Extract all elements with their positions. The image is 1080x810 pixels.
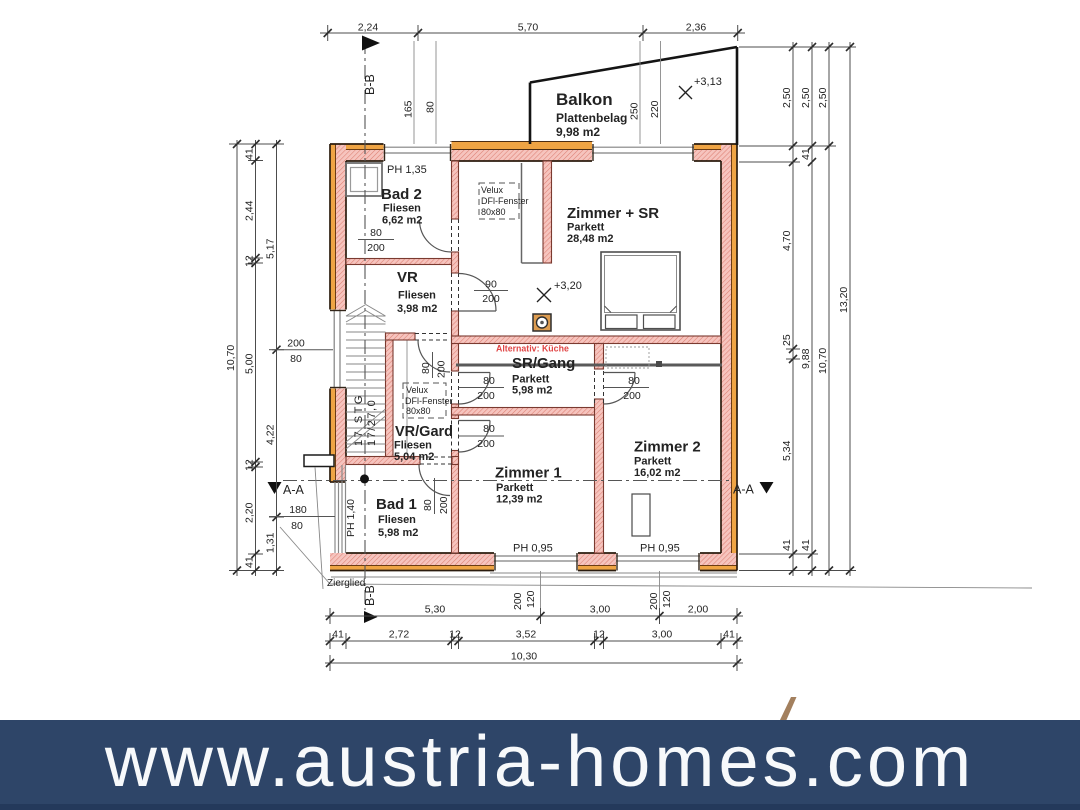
- svg-text:41: 41: [800, 148, 812, 160]
- svg-text:Fliesen: Fliesen: [398, 290, 436, 302]
- svg-text:www.austria-homes.com: www.austria-homes.com: [104, 722, 975, 802]
- svg-text:3,52: 3,52: [516, 629, 537, 641]
- svg-text:4,22: 4,22: [265, 424, 277, 445]
- svg-text:VR: VR: [397, 269, 418, 286]
- svg-text:Alternativ: Küche: Alternativ: Küche: [496, 344, 569, 354]
- svg-text:200: 200: [623, 390, 641, 402]
- svg-text:2,20: 2,20: [244, 502, 256, 523]
- svg-text:17/27,0: 17/27,0: [366, 399, 378, 446]
- svg-text:5,00: 5,00: [244, 353, 256, 374]
- svg-text:41: 41: [800, 539, 812, 551]
- svg-text:A-A: A-A: [733, 483, 755, 497]
- svg-text:Balkon: Balkon: [556, 90, 613, 109]
- svg-text:SR/Gang: SR/Gang: [512, 355, 575, 372]
- svg-text:5,34: 5,34: [781, 440, 793, 461]
- svg-text:Bad 2: Bad 2: [381, 186, 422, 203]
- svg-text:250: 250: [629, 102, 641, 120]
- svg-text:DFl-Fenster: DFl-Fenster: [481, 196, 529, 206]
- svg-text:PH 1,40: PH 1,40: [345, 499, 357, 537]
- svg-text:41: 41: [781, 539, 793, 551]
- svg-text:+3,20: +3,20: [554, 280, 582, 292]
- svg-text:12: 12: [593, 629, 605, 641]
- svg-text:Parkett: Parkett: [634, 456, 672, 468]
- svg-text:16,02 m2: 16,02 m2: [634, 467, 680, 479]
- svg-text:1,31: 1,31: [265, 532, 277, 553]
- svg-text:5,98 m2: 5,98 m2: [378, 527, 418, 539]
- svg-text:2,50: 2,50: [800, 87, 812, 108]
- svg-text:200: 200: [512, 592, 524, 610]
- svg-text:Zimmer + SR: Zimmer + SR: [567, 205, 659, 222]
- svg-text:10,30: 10,30: [511, 651, 537, 663]
- svg-text:9,98 m2: 9,98 m2: [556, 125, 600, 139]
- svg-text:80x80: 80x80: [406, 406, 431, 416]
- svg-text:2,44: 2,44: [244, 200, 256, 221]
- svg-text:Velux: Velux: [481, 185, 504, 195]
- svg-text:120: 120: [525, 590, 537, 608]
- svg-text:80: 80: [420, 362, 432, 374]
- svg-text:80: 80: [290, 353, 302, 365]
- svg-text:90: 90: [485, 279, 497, 291]
- svg-text:10,70: 10,70: [817, 348, 829, 374]
- svg-text:2,72: 2,72: [389, 629, 410, 641]
- svg-text:28,48 m2: 28,48 m2: [567, 233, 613, 245]
- svg-text:120: 120: [661, 590, 673, 608]
- svg-text:200: 200: [287, 338, 305, 350]
- svg-text:200: 200: [436, 360, 448, 378]
- svg-text:200: 200: [477, 390, 495, 402]
- svg-text:200: 200: [482, 293, 500, 305]
- svg-text:Bad 1: Bad 1: [376, 496, 417, 513]
- svg-text:Parkett: Parkett: [496, 482, 534, 494]
- svg-text:DFl-Fenster: DFl-Fenster: [405, 396, 453, 406]
- svg-text:+3,13: +3,13: [694, 76, 722, 88]
- svg-text:80: 80: [628, 375, 640, 387]
- svg-text:165: 165: [403, 100, 415, 118]
- svg-text:Zierglied: Zierglied: [327, 578, 365, 589]
- svg-text:Fliesen: Fliesen: [383, 203, 421, 215]
- svg-text:12,39 m2: 12,39 m2: [496, 494, 542, 506]
- svg-text:80: 80: [422, 499, 434, 511]
- svg-text:3,98 m2: 3,98 m2: [397, 303, 437, 315]
- svg-text:5,04 m2: 5,04 m2: [394, 451, 434, 463]
- svg-text:PH 0,95: PH 0,95: [513, 543, 553, 555]
- svg-text:10,70: 10,70: [225, 345, 237, 371]
- svg-text:41: 41: [244, 148, 256, 160]
- svg-text:5,17: 5,17: [265, 238, 277, 259]
- svg-text:13,20: 13,20: [838, 287, 850, 313]
- svg-text:41: 41: [332, 629, 344, 641]
- svg-text:5,30: 5,30: [425, 604, 446, 616]
- svg-text:Velux: Velux: [406, 385, 429, 395]
- svg-text:PH 1,35: PH 1,35: [387, 164, 427, 176]
- svg-text:3,00: 3,00: [590, 604, 611, 616]
- svg-text:12: 12: [449, 629, 461, 641]
- svg-text:12: 12: [244, 459, 256, 471]
- svg-text:B-B: B-B: [363, 74, 377, 95]
- svg-text:80: 80: [483, 375, 495, 387]
- svg-text:41: 41: [723, 629, 735, 641]
- svg-text:25: 25: [781, 334, 793, 346]
- svg-text:9,88: 9,88: [800, 348, 812, 369]
- svg-text:2,50: 2,50: [817, 87, 829, 108]
- svg-text:5,98 m2: 5,98 m2: [512, 385, 552, 397]
- svg-text:80: 80: [483, 423, 495, 435]
- svg-text:3,00: 3,00: [652, 629, 673, 641]
- svg-text:PH 0,95: PH 0,95: [640, 543, 680, 555]
- svg-text:200: 200: [367, 242, 385, 254]
- svg-text:41: 41: [244, 556, 256, 568]
- svg-text:200: 200: [648, 592, 660, 610]
- svg-text:Plattenbelag: Plattenbelag: [556, 111, 627, 125]
- svg-text:200: 200: [438, 496, 450, 514]
- svg-text:12: 12: [244, 255, 256, 267]
- svg-text:80: 80: [291, 520, 303, 532]
- svg-text:200: 200: [477, 438, 495, 450]
- svg-text:VR/Gard: VR/Gard: [395, 424, 453, 440]
- svg-text:Fliesen: Fliesen: [378, 514, 416, 526]
- svg-text:Fliesen: Fliesen: [394, 440, 432, 452]
- svg-text:2,00: 2,00: [688, 604, 709, 616]
- svg-text:80x80: 80x80: [481, 207, 506, 217]
- svg-text:17 STG: 17 STG: [353, 393, 365, 446]
- svg-text:Zimmer 1: Zimmer 1: [495, 465, 562, 482]
- svg-text:180: 180: [289, 504, 307, 516]
- svg-text:A-A: A-A: [283, 483, 305, 497]
- svg-text:6,62 m2: 6,62 m2: [382, 215, 422, 227]
- svg-text:2,36: 2,36: [686, 22, 707, 34]
- svg-text:2,24: 2,24: [358, 22, 379, 34]
- svg-text:80: 80: [370, 227, 382, 239]
- svg-text:220: 220: [649, 100, 661, 118]
- svg-text:80: 80: [425, 101, 437, 113]
- svg-text:4,70: 4,70: [781, 230, 793, 251]
- svg-text:Zimmer 2: Zimmer 2: [634, 439, 701, 456]
- svg-text:5,70: 5,70: [518, 22, 539, 34]
- svg-text:2,50: 2,50: [781, 87, 793, 108]
- svg-text:Parkett: Parkett: [567, 222, 605, 234]
